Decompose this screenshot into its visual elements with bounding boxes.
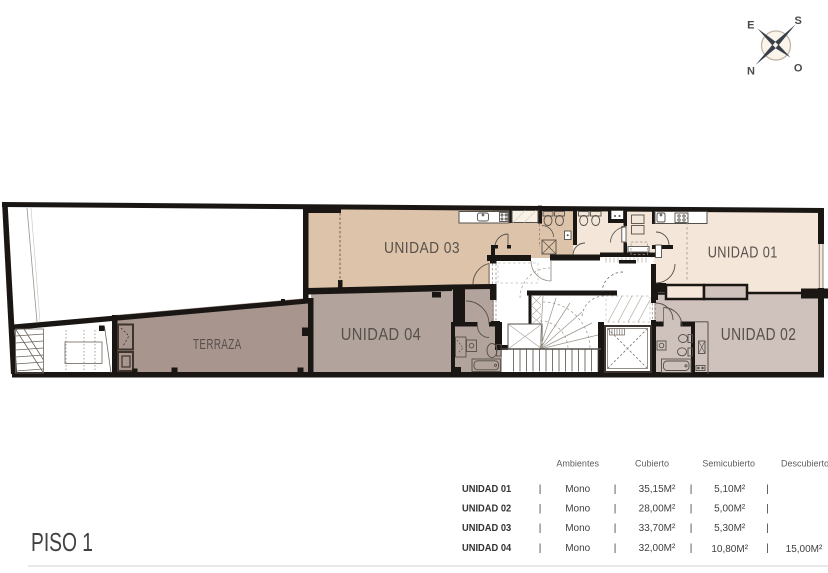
svg-text:Ambientes: Ambientes <box>556 459 599 469</box>
svg-text:Cubierto: Cubierto <box>635 459 669 469</box>
svg-text:Mono: Mono <box>565 523 590 534</box>
svg-text:|: | <box>614 504 617 515</box>
svg-text:28,00M²: 28,00M² <box>639 504 676 515</box>
svg-text:5,10M²: 5,10M² <box>714 484 746 495</box>
svg-text:33,70M²: 33,70M² <box>639 523 676 534</box>
svg-text:N: N <box>747 66 755 78</box>
svg-text:|: | <box>539 504 542 515</box>
svg-text:Mono: Mono <box>565 504 590 515</box>
svg-text:|: | <box>614 523 617 534</box>
svg-text:|: | <box>539 543 542 554</box>
svg-text:|: | <box>766 504 769 515</box>
svg-text:|: | <box>690 484 693 495</box>
svg-text:UNIDAD 03: UNIDAD 03 <box>384 240 460 257</box>
svg-text:|: | <box>766 523 769 534</box>
svg-text:|: | <box>766 543 769 554</box>
svg-text:32,00M²: 32,00M² <box>639 543 676 554</box>
svg-text:UNIDAD 02: UNIDAD 02 <box>462 504 512 515</box>
svg-text:TERRAZA: TERRAZA <box>193 337 242 353</box>
svg-text:|: | <box>766 484 769 495</box>
svg-text:UNIDAD 04: UNIDAD 04 <box>462 543 512 554</box>
svg-text:Mono: Mono <box>565 543 590 554</box>
svg-text:10,80M²: 10,80M² <box>711 544 748 555</box>
svg-text:15,00M²: 15,00M² <box>786 544 823 555</box>
svg-text:S: S <box>795 15 802 27</box>
svg-text:|: | <box>690 543 693 554</box>
svg-text:35,15M²: 35,15M² <box>639 484 676 495</box>
svg-text:O: O <box>794 63 803 75</box>
svg-text:Mono: Mono <box>565 484 590 495</box>
svg-text:|: | <box>690 504 693 515</box>
svg-text:|: | <box>539 484 542 495</box>
svg-text:UNIDAD 03: UNIDAD 03 <box>462 523 512 534</box>
svg-text:|: | <box>539 523 542 534</box>
svg-text:UNIDAD 02: UNIDAD 02 <box>721 324 797 344</box>
svg-text:|: | <box>614 484 617 495</box>
svg-text:5,30M²: 5,30M² <box>714 523 746 534</box>
svg-text:PISO 1: PISO 1 <box>31 527 93 557</box>
svg-text:Descubierto: Descubierto <box>781 459 828 469</box>
svg-text:UNIDAD 01: UNIDAD 01 <box>708 245 778 262</box>
svg-text:E: E <box>747 20 754 32</box>
svg-text:|: | <box>614 543 617 554</box>
svg-text:UNIDAD 04: UNIDAD 04 <box>341 324 422 344</box>
svg-text:UNIDAD 01: UNIDAD 01 <box>462 484 512 495</box>
svg-text:Semicubierto: Semicubierto <box>702 459 755 469</box>
svg-text:5,00M²: 5,00M² <box>714 504 746 515</box>
svg-text:|: | <box>690 523 693 534</box>
